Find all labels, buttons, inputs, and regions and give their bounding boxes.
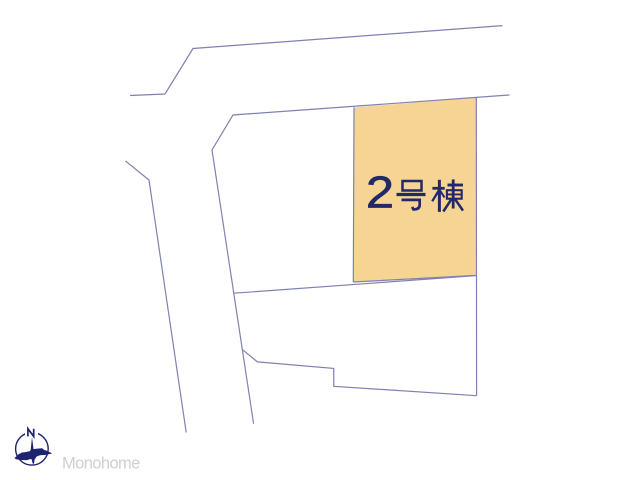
svg-text:2: 2 <box>366 168 394 217</box>
svg-text:Monohome: Monohome <box>62 454 140 472</box>
